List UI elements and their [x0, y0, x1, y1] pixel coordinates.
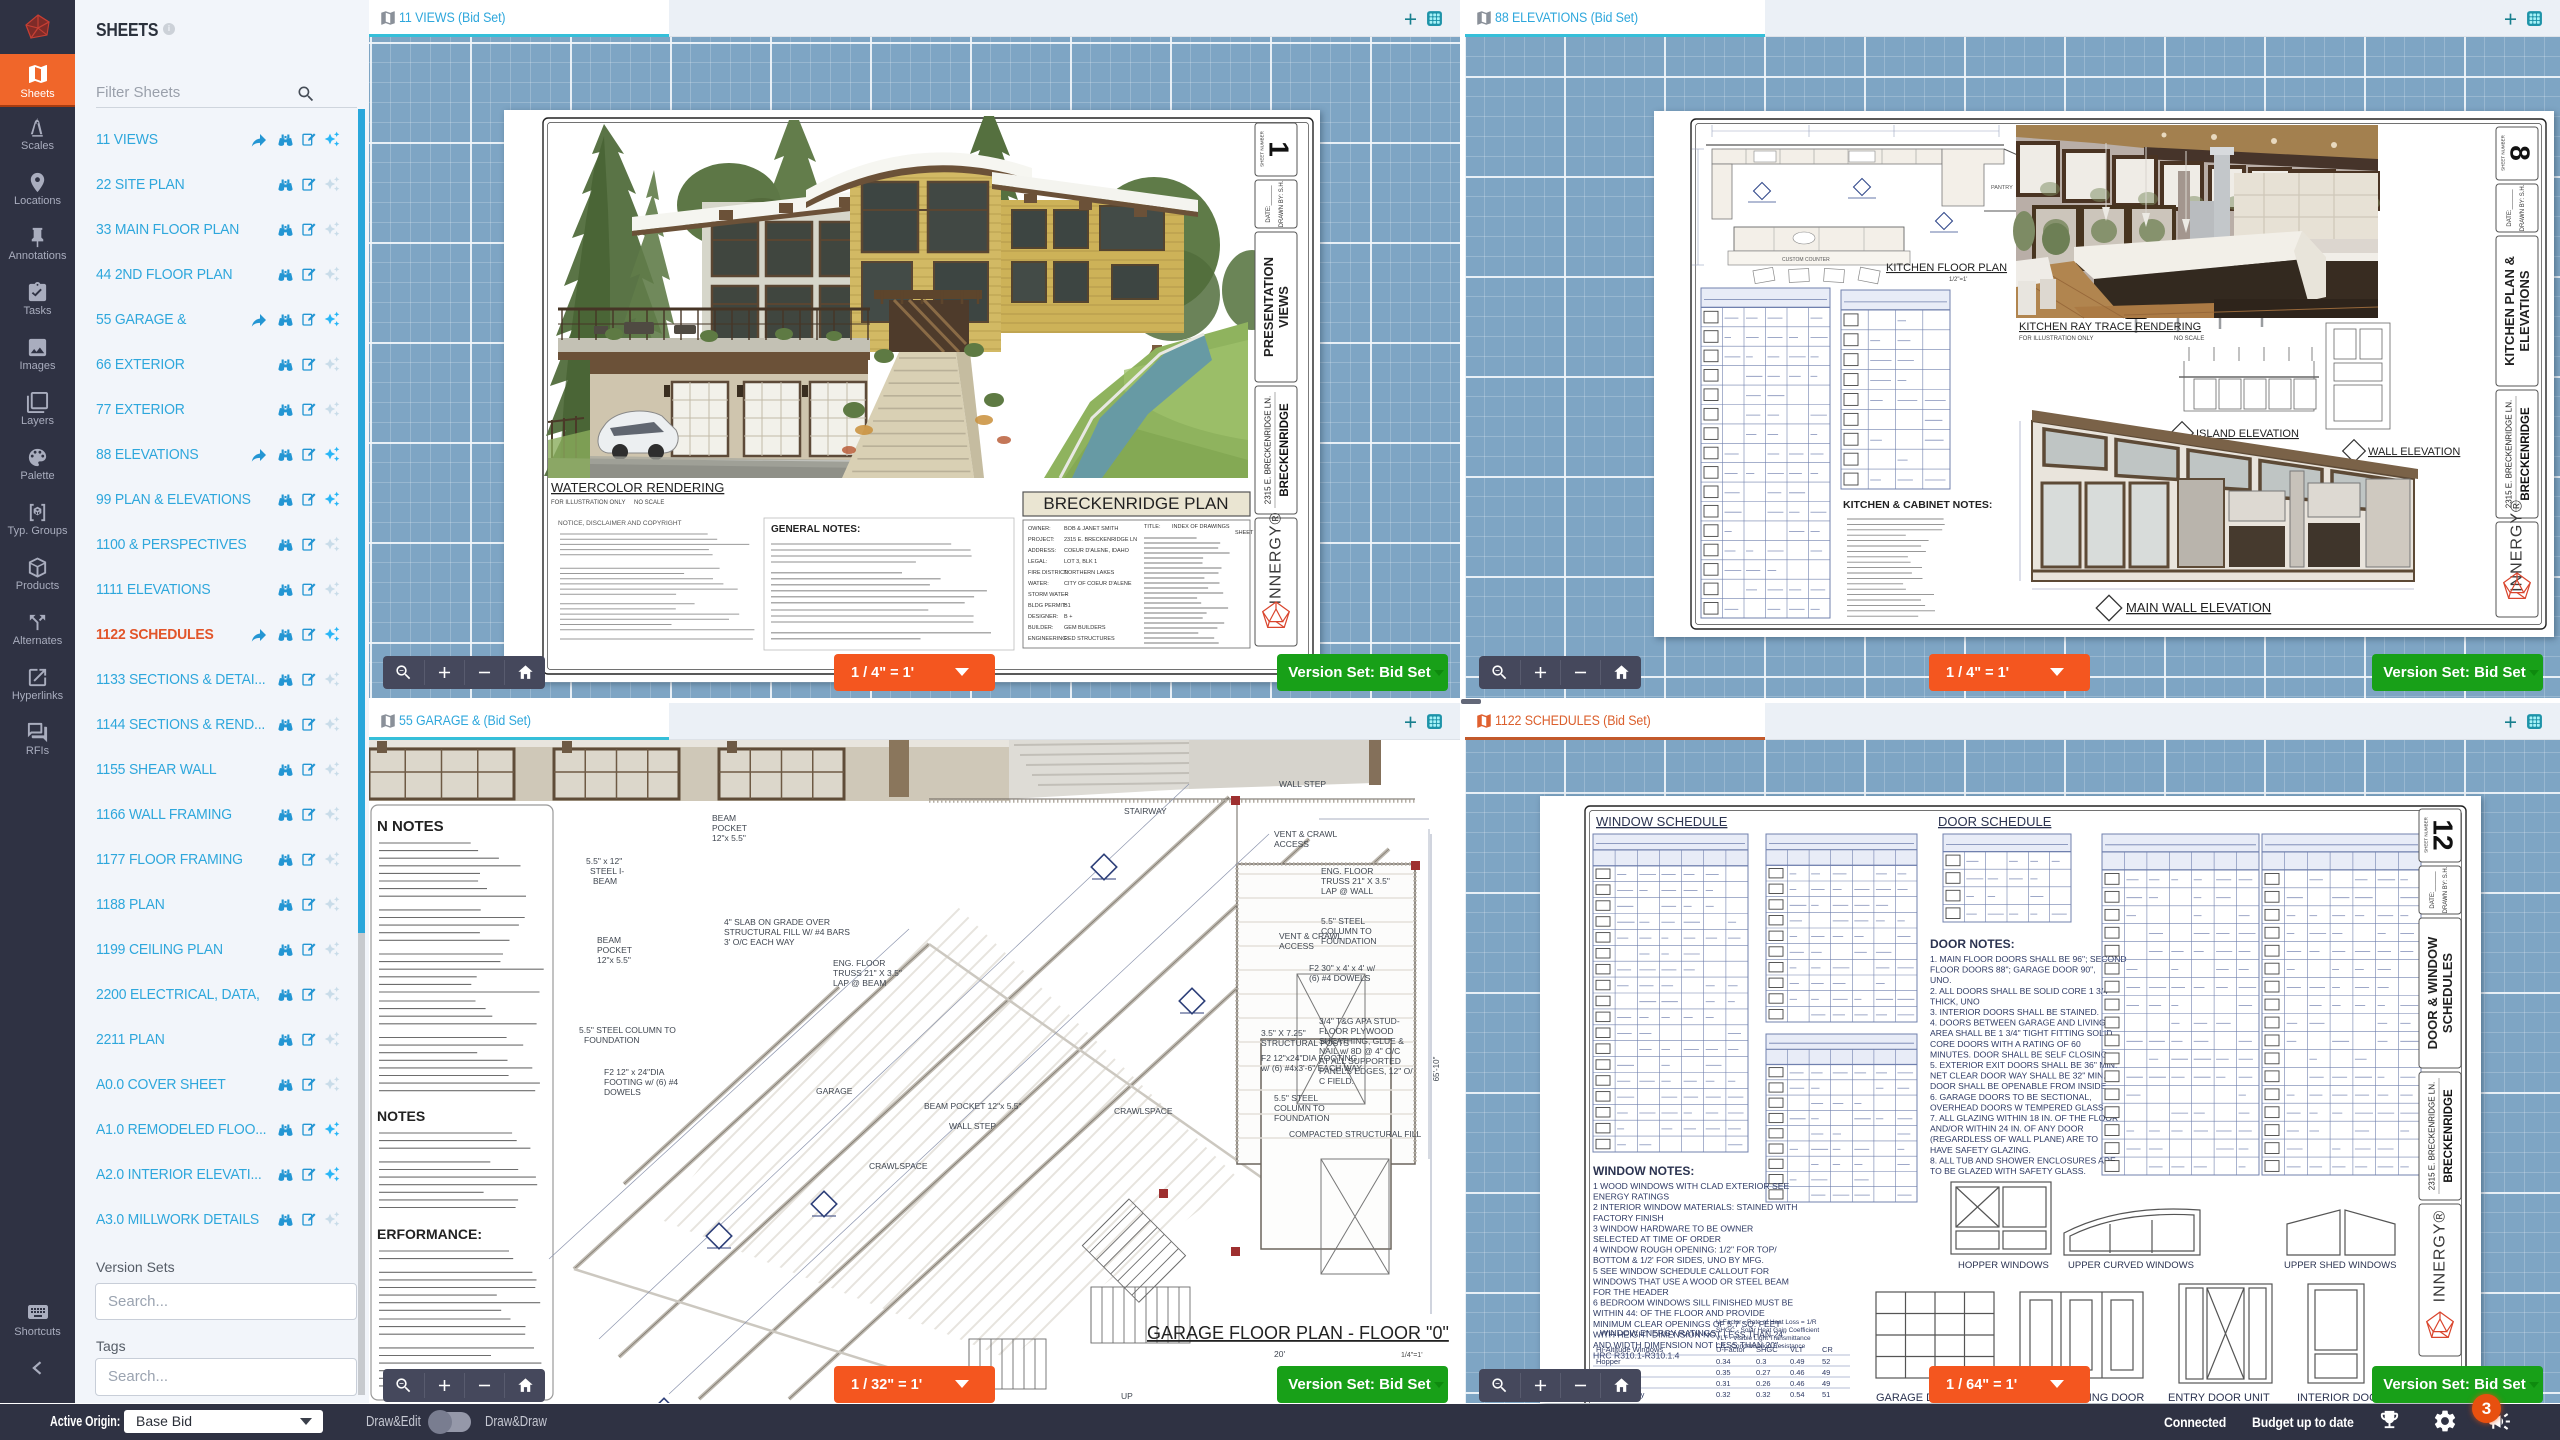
svg-text:FOR ILLUSTRATION ONLY: FOR ILLUSTRATION ONLY — [551, 500, 625, 506]
svg-text:FIRE DISTRICT:: FIRE DISTRICT: — [1028, 570, 1069, 576]
svg-text:DOOR SHALL BE OPENABLE FROM IN: DOOR SHALL BE OPENABLE FROM INSIDE — [1930, 1081, 2107, 1091]
svg-text:SCHEDULES: SCHEDULES — [2440, 953, 2455, 1034]
svg-text:4. DOORS BETWEEN GARAGE AND LI: 4. DOORS BETWEEN GARAGE AND LIVING — [1930, 1018, 2106, 1028]
svg-text:BOTTOM & 1/2' FOR SIDES, UNO B: BOTTOM & 1/2' FOR SIDES, UNO BY MFG. — [1593, 1255, 1764, 1265]
svg-text:1/2"=1': 1/2"=1' — [1949, 277, 1967, 283]
svg-text:3 WINDOW HARDWARE TO BE OWNER: 3 WINDOW HARDWARE TO BE OWNER — [1593, 1223, 1753, 1233]
svg-text:6. GARAGE DOORS TO BE SECTIONA: 6. GARAGE DOORS TO BE SECTIONAL, — [1930, 1092, 2092, 1102]
svg-text:KITCHEN PLAN &: KITCHEN PLAN & — [2502, 256, 2517, 366]
svg-text:DOWELS: DOWELS — [604, 1087, 641, 1097]
svg-text:CRAWLSPACE: CRAWLSPACE — [1114, 1106, 1173, 1116]
svg-text:4 WINDOW ROUGH OPENING: 1/2" F: 4 WINDOW ROUGH OPENING: 1/2" FOR TOP/ — [1593, 1245, 1777, 1255]
svg-text:5 SEE WINDOW SCHEDULE CALLOUT: 5 SEE WINDOW SCHEDULE CALLOUT FOR — [1593, 1266, 1769, 1276]
svg-text:DATE:______: DATE:______ — [2430, 871, 2436, 909]
svg-text:4" SLAB ON GRADE OVER: 4" SLAB ON GRADE OVER — [724, 917, 830, 927]
svg-text:0.46: 0.46 — [1790, 1379, 1805, 1388]
svg-text:AT ALL SUPPORTED: AT ALL SUPPORTED — [1319, 1056, 1401, 1066]
svg-text:CR: CR — [1822, 1345, 1833, 1354]
svg-text:AND/OR WITHIN 24 IN. OF ANY DO: AND/OR WITHIN 24 IN. OF ANY DOOR — [1930, 1124, 2084, 1134]
svg-text:NO SCALE: NO SCALE — [634, 500, 664, 506]
svg-text:BEAM POCKET 12"x 5.5": BEAM POCKET 12"x 5.5" — [924, 1101, 1022, 1111]
svg-text:DOOR SCHEDULE: DOOR SCHEDULE — [1938, 814, 2052, 829]
svg-text:2315 E. BRECKENRIDGE LN: 2315 E. BRECKENRIDGE LN — [1064, 537, 1137, 543]
svg-text:--: -- — [1064, 592, 1068, 598]
svg-text:1/4"=1': 1/4"=1' — [1401, 1352, 1423, 1359]
svg-text:WALL STEP: WALL STEP — [949, 1121, 996, 1131]
svg-text:12"x 5.5": 12"x 5.5" — [712, 833, 746, 843]
svg-text:2. ALL DOORS SHALL BE SOLID CO: 2. ALL DOORS SHALL BE SOLID CORE 1 3/4" — [1930, 986, 2111, 996]
svg-text:0.3: 0.3 — [1756, 1357, 1766, 1366]
svg-text:(6) #4 DOWELS: (6) #4 DOWELS — [1309, 973, 1371, 983]
svg-text:FACTORY FINISH: FACTORY FINISH — [1593, 1213, 1664, 1223]
svg-text:PRESENTATION: PRESENTATION — [1261, 257, 1276, 357]
svg-text:SHEET: SHEET — [1235, 530, 1254, 536]
svg-text:ENGINEERING:: ENGINEERING: — [1028, 636, 1069, 642]
svg-text:AREA SHALL BE 1 3/4" TIGHT FIT: AREA SHALL BE 1 3/4" TIGHT FITTING SOLID — [1930, 1028, 2112, 1038]
svg-text:FOR THE HEADER: FOR THE HEADER — [1593, 1287, 1669, 1297]
svg-text:TRUSS 21" X 3.5": TRUSS 21" X 3.5" — [1321, 876, 1390, 886]
svg-text:3' O/C EACH WAY: 3' O/C EACH WAY — [724, 937, 795, 947]
svg-text:GARAGE FLOOR PLAN - FLOOR "0": GARAGE FLOOR PLAN - FLOOR "0" — [1147, 1323, 1449, 1343]
svg-text:FOOTING w/ (6) #4: FOOTING w/ (6) #4 — [604, 1077, 678, 1087]
svg-text:BEAM: BEAM — [597, 935, 621, 945]
svg-text:COLUMN TO: COLUMN TO — [1321, 926, 1372, 936]
svg-text:BRECKENRIDGE: BRECKENRIDGE — [2520, 407, 2532, 501]
svg-text:ENG. FLOOR: ENG. FLOOR — [1321, 866, 1373, 876]
svg-text:WALL STEP: WALL STEP — [1279, 779, 1326, 789]
svg-text:DATE:______: DATE:______ — [2507, 189, 2513, 227]
svg-text:SHGC: SHGC — [1756, 1345, 1778, 1354]
svg-text:(REGARDLESS OF WALL PLANE) ARE: (REGARDLESS OF WALL PLANE) ARE TO — [1930, 1134, 2098, 1144]
svg-text:STAIRWAY: STAIRWAY — [1124, 806, 1167, 816]
svg-text:STRUCTURAL FILL W/ #4 BARS: STRUCTURAL FILL W/ #4 BARS — [724, 927, 850, 937]
svg-text:INNERGY®: INNERGY® — [2432, 1210, 2449, 1303]
svg-text:DESIGNER:: DESIGNER: — [1028, 614, 1059, 620]
svg-text:12: 12 — [2428, 819, 2459, 850]
svg-text:0.32: 0.32 — [1716, 1390, 1731, 1399]
svg-text:GENERAL NOTES:: GENERAL NOTES: — [771, 524, 860, 535]
svg-text:6 BEDROOM WINDOWS SILL FINISHE: 6 BEDROOM WINDOWS SILL FINISHED MUST BE — [1593, 1298, 1793, 1308]
svg-text:LAP @ BEAM: LAP @ BEAM — [833, 978, 886, 988]
svg-text:TITLE:: TITLE: — [1144, 524, 1161, 530]
svg-text:65'-10": 65'-10" — [1432, 1056, 1441, 1081]
svg-text:LAP @ WALL: LAP @ WALL — [1321, 886, 1373, 896]
svg-text:BLDG PERMIT:: BLDG PERMIT: — [1028, 603, 1067, 609]
svg-text:SHGC - Solar Heat Gain Coeffic: SHGC - Solar Heat Gain Coefficient — [1716, 1327, 1819, 1334]
svg-text:RED STRUCTURES: RED STRUCTURES — [1064, 636, 1115, 642]
svg-text:8: 8 — [2505, 145, 2536, 161]
svg-text:N NOTES: N NOTES — [377, 818, 444, 835]
svg-text:Hopper: Hopper — [1596, 1357, 1621, 1366]
svg-text:PANTRY: PANTRY — [1991, 185, 2013, 191]
svg-text:2315 E. BRECKENRIDGE LN.: 2315 E. BRECKENRIDGE LN. — [1264, 396, 1273, 504]
svg-text:1: 1 — [1264, 141, 1295, 157]
svg-text:NAIL w/ 8D @ 4" O/C: NAIL w/ 8D @ 4" O/C — [1319, 1046, 1400, 1056]
svg-text:LOT 3, BLK 1: LOT 3, BLK 1 — [1064, 559, 1097, 565]
svg-text:2 INTERIOR WINDOW MATERIALS:: 2 INTERIOR WINDOW MATERIALS: STAINED WIT… — [1593, 1202, 1798, 1212]
svg-text:FOR ILLUSTRATION ONLY: FOR ILLUSTRATION ONLY — [2019, 336, 2093, 342]
svg-text:FOUNDATION: FOUNDATION — [1274, 1113, 1330, 1123]
svg-text:KITCHEN RAY TRACE RENDERING: KITCHEN RAY TRACE RENDERING — [2019, 321, 2201, 333]
svg-text:BOB & JANET SMITH: BOB & JANET SMITH — [1064, 526, 1118, 532]
svg-text:SELECTED AT TIME OF ORDER: SELECTED AT TIME OF ORDER — [1593, 1234, 1721, 1244]
svg-text:CITY OF COEUR D'ALENE: CITY OF COEUR D'ALENE — [1064, 581, 1132, 587]
svg-text:ENG. FLOOR: ENG. FLOOR — [833, 958, 885, 968]
svg-text:BRECKENRIDGE: BRECKENRIDGE — [2443, 1089, 2455, 1183]
svg-text:12"x 5.5": 12"x 5.5" — [597, 955, 631, 965]
svg-text:U-Factor: U-Factor — [1716, 1345, 1746, 1354]
svg-text:1. MAIN FLOOR DOORS SHALL BE 9: 1. MAIN FLOOR DOORS SHALL BE 96"; SECOND — [1930, 954, 2127, 964]
svg-text:UP: UP — [1121, 1391, 1133, 1401]
svg-text:NOTES: NOTES — [377, 1108, 425, 1124]
svg-text:ERFORMANCE:: ERFORMANCE: — [377, 1226, 482, 1242]
svg-text:F2 12" x 24"DIA: F2 12" x 24"DIA — [604, 1067, 665, 1077]
svg-text:8. ALL TUB AND SHOWER ENCLOSUR: 8. ALL TUB AND SHOWER ENCLOSURES ARE — [1930, 1155, 2116, 1165]
svg-text:B1: B1 — [1064, 603, 1071, 609]
svg-text:TRUSS 21" X 3.5": TRUSS 21" X 3.5" — [833, 968, 902, 978]
svg-text:0.26: 0.26 — [1756, 1379, 1771, 1388]
svg-text:INNERGY®: INNERGY® — [1268, 512, 1285, 605]
svg-text:CUSTOM COUNTER: CUSTOM COUNTER — [1782, 257, 1830, 263]
svg-text:7. ALL GLAZING WITHIN 18 IN. O: 7. ALL GLAZING WITHIN 18 IN. OF THE FLOO… — [1930, 1113, 2118, 1123]
svg-text:GARAGE: GARAGE — [816, 1086, 853, 1096]
svg-text:5.5" STEEL: 5.5" STEEL — [1321, 916, 1365, 926]
svg-text:VLT: VLT — [1790, 1345, 1804, 1354]
svg-text:1 WOOD WINDOWS WITH CLAD EXTER: 1 WOOD WINDOWS WITH CLAD EXTERIOR SEE — [1593, 1181, 1790, 1191]
svg-text:0.34: 0.34 — [1716, 1357, 1731, 1366]
svg-text:0.32: 0.32 — [1756, 1390, 1771, 1399]
svg-text:DOOR & WINDOW: DOOR & WINDOW — [2425, 936, 2440, 1049]
svg-text:ELEVATIONS: ELEVATIONS — [2517, 270, 2532, 351]
svg-text:THICK, UNO: THICK, UNO — [1930, 996, 1980, 1006]
svg-text:DRAWN BY: S.H.: DRAWN BY: S.H. — [1279, 180, 1285, 227]
svg-text:OWNER:: OWNER: — [1028, 526, 1051, 532]
svg-text:ACCESS: ACCESS — [1274, 839, 1309, 849]
svg-text:COLUMN TO: COLUMN TO — [1274, 1103, 1325, 1113]
svg-text:51: 51 — [1822, 1390, 1830, 1399]
svg-text:0.35: 0.35 — [1716, 1368, 1731, 1377]
svg-text:NET CLEAR DOOR WAY SHALL BE 32: NET CLEAR DOOR WAY SHALL BE 32" MIN. — [1930, 1071, 2106, 1081]
svg-text:WITHIN 44: OF THE FLOOR AND PR: WITHIN 44: OF THE FLOOR AND PROVIDE — [1593, 1308, 1765, 1318]
svg-text:FOUNDATION: FOUNDATION — [584, 1035, 640, 1045]
svg-text:ADDRESS:: ADDRESS: — [1028, 548, 1057, 554]
svg-text:52: 52 — [1822, 1357, 1830, 1366]
svg-text:POCKET: POCKET — [712, 823, 747, 833]
svg-text:CRAWLSPACE: CRAWLSPACE — [869, 1161, 928, 1171]
svg-text:NO SCALE: NO SCALE — [2174, 336, 2204, 342]
svg-text:3.5" X 7.25": 3.5" X 7.25" — [1261, 1028, 1306, 1038]
svg-text:UPPER SHED WINDOWS: UPPER SHED WINDOWS — [2284, 1260, 2396, 1271]
svg-text:UNO.: UNO. — [1930, 975, 1951, 985]
svg-text:3. INTERIOR DOORS SHALL BE STA: 3. INTERIOR DOORS SHALL BE STAINED. — [1930, 1007, 2099, 1017]
svg-text:PROJECT:: PROJECT: — [1028, 537, 1055, 543]
svg-text:Hi-Altitude Windows: Hi-Altitude Windows — [1596, 1345, 1663, 1354]
svg-text:BEAM: BEAM — [593, 876, 617, 886]
svg-text:5.5" STEEL COLUMN TO: 5.5" STEEL COLUMN TO — [579, 1025, 676, 1035]
svg-text:FLOOR DOORS 88"; GARAGE DOOR 9: FLOOR DOORS 88"; GARAGE DOOR 90", — [1930, 965, 2096, 975]
svg-text:0.54: 0.54 — [1790, 1390, 1805, 1399]
svg-text:WINDOWS THAT USE A WOOD OR STE: WINDOWS THAT USE A WOOD OR STEEL BEAM — [1593, 1276, 1789, 1286]
svg-text:INDEX OF DRAWINGS: INDEX OF DRAWINGS — [1172, 524, 1230, 530]
svg-text:WINDOW SCHEDULE: WINDOW SCHEDULE — [1596, 814, 1728, 829]
svg-text:49: 49 — [1822, 1368, 1830, 1377]
svg-text:TO BE GLAZED WITH SAFETY GLASS: TO BE GLAZED WITH SAFETY GLASS. — [1930, 1166, 2086, 1176]
svg-text:49: 49 — [1822, 1379, 1830, 1388]
svg-text:COEUR D'ALENE, IDAHO: COEUR D'ALENE, IDAHO — [1064, 548, 1130, 554]
svg-text:WALL ELEVATION: WALL ELEVATION — [2368, 446, 2460, 458]
svg-text:DOOR NOTES:: DOOR NOTES: — [1930, 937, 2015, 951]
svg-text:B +: B + — [1064, 614, 1072, 620]
svg-text:MAIN WALL ELEVATION: MAIN WALL ELEVATION — [2126, 600, 2271, 615]
svg-text:U-Factor - Rate of Heat Loss =: U-Factor - Rate of Heat Loss = 1/R — [1716, 1319, 1817, 1326]
svg-text:ENTRY DOOR UNIT: ENTRY DOOR UNIT — [2168, 1392, 2270, 1403]
svg-text:KITCHEN FLOOR PLAN: KITCHEN FLOOR PLAN — [1886, 262, 2007, 274]
svg-text:F2 30" x 4' x 4' w/: F2 30" x 4' x 4' w/ — [1309, 963, 1376, 973]
svg-text:UPPER CURVED WINDOWS: UPPER CURVED WINDOWS — [2068, 1260, 2194, 1271]
svg-text:C FIELD.: C FIELD. — [1319, 1076, 1354, 1086]
svg-text:SHEATHING, GLUE &: SHEATHING, GLUE & — [1319, 1036, 1404, 1046]
svg-text:STORM WATER: STORM WATER — [1028, 592, 1069, 598]
svg-text:OVERHEAD DOORS W TEMPERED GLAS: OVERHEAD DOORS W TEMPERED GLASS — [1930, 1102, 2104, 1112]
svg-text:2315 E. BRECKENRIDGE LN.: 2315 E. BRECKENRIDGE LN. — [2505, 400, 2514, 508]
svg-text:NORTHERN LAKES: NORTHERN LAKES — [1064, 570, 1115, 576]
svg-text:BUILDER:: BUILDER: — [1028, 625, 1054, 631]
svg-text:VENT & CRAWL: VENT & CRAWL — [1274, 829, 1338, 839]
svg-text:5.5" x 12": 5.5" x 12" — [586, 856, 622, 866]
svg-text:FOUNDATION: FOUNDATION — [1321, 936, 1377, 946]
svg-text:MINUTES. DOOR SHALL BE SELF CL: MINUTES. DOOR SHALL BE SELF CLOSING — [1930, 1049, 2108, 1059]
svg-text:0.46: 0.46 — [1790, 1368, 1805, 1377]
svg-text:WINDOW NOTES:: WINDOW NOTES: — [1593, 1164, 1694, 1178]
svg-text:0.27: 0.27 — [1756, 1368, 1771, 1377]
svg-text:PANELS EDGES, 12" O/: PANELS EDGES, 12" O/ — [1319, 1066, 1413, 1076]
svg-text:BEAM: BEAM — [712, 813, 736, 823]
svg-text:CORE DOORS WITH A RATING OF 60: CORE DOORS WITH A RATING OF 60 — [1930, 1039, 2081, 1049]
svg-text:2315 E. BRECKENRIDGE LN.: 2315 E. BRECKENRIDGE LN. — [2428, 1082, 2437, 1190]
svg-text:GEM BUILDERS: GEM BUILDERS — [1064, 625, 1106, 631]
svg-text:DATE:______: DATE:______ — [1266, 185, 1272, 223]
svg-text:0.49: 0.49 — [1790, 1357, 1805, 1366]
svg-text:5.5" STEEL: 5.5" STEEL — [1274, 1093, 1318, 1103]
svg-text:DRAWN BY: S.H.: DRAWN BY: S.H. — [2443, 866, 2449, 913]
svg-text:BRECKENRIDGE: BRECKENRIDGE — [1279, 403, 1291, 497]
svg-text:WINDOW ENERGY RATINGS: WINDOW ENERGY RATINGS — [1600, 1328, 1716, 1338]
svg-text:VLT - Visible Light Transmitta: VLT - Visible Light Transmittance — [1716, 1335, 1811, 1342]
svg-text:3/4" T&G APA STUD-: 3/4" T&G APA STUD- — [1319, 1016, 1400, 1026]
svg-text:20': 20' — [1274, 1349, 1285, 1359]
svg-text:ACCESS: ACCESS — [1279, 941, 1314, 951]
svg-text:STEEL I-: STEEL I- — [590, 866, 624, 876]
svg-text:0.31: 0.31 — [1716, 1379, 1731, 1388]
svg-text:NOTICE, DISCLAIMER AND COPYRIG: NOTICE, DISCLAIMER AND COPYRIGHT — [558, 520, 682, 527]
svg-text:COMPACTED STRUCTURAL FILL: COMPACTED STRUCTURAL FILL — [1289, 1129, 1422, 1139]
svg-text:POCKET: POCKET — [597, 945, 632, 955]
svg-text:HAVE SAFETY GLAZING.: HAVE SAFETY GLAZING. — [1930, 1145, 2031, 1155]
svg-text:HOPPER WINDOWS: HOPPER WINDOWS — [1958, 1260, 2049, 1271]
svg-text:LEGAL:: LEGAL: — [1028, 559, 1048, 565]
svg-text:WATERCOLOR RENDERING: WATERCOLOR RENDERING — [551, 480, 724, 495]
svg-text:ENERGY RATINGS: ENERGY RATINGS — [1593, 1192, 1669, 1202]
svg-text:VIEWS: VIEWS — [1276, 286, 1291, 328]
svg-text:DRAWN BY: S.H.: DRAWN BY: S.H. — [2520, 184, 2526, 231]
svg-text:WATER:: WATER: — [1028, 581, 1049, 587]
svg-text:FLOOR PLYWOOD: FLOOR PLYWOOD — [1319, 1026, 1393, 1036]
svg-text:BRECKENRIDGE PLAN: BRECKENRIDGE PLAN — [1043, 494, 1228, 513]
svg-text:5. EXTERIOR EXIT DOORS SHALL B: 5. EXTERIOR EXIT DOORS SHALL BE 36" MIN. — [1930, 1060, 2117, 1070]
svg-text:KITCHEN & CABINET NOTES:: KITCHEN & CABINET NOTES: — [1843, 499, 1992, 511]
